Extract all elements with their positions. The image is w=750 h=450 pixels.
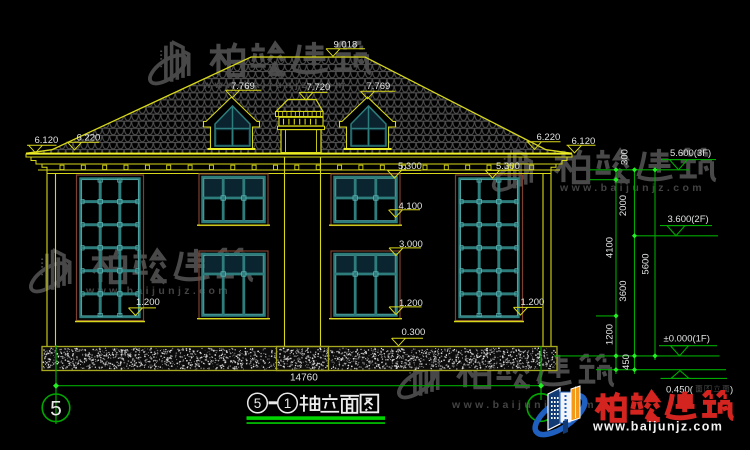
svg-text:6.120: 6.120 [572,136,596,147]
svg-text:7.769: 7.769 [231,81,255,92]
svg-text:14760: 14760 [290,373,318,384]
svg-text:4100: 4100 [605,237,616,258]
svg-text:4.100: 4.100 [399,201,423,212]
svg-text:): ) [730,385,733,396]
svg-text:1.200: 1.200 [399,298,423,309]
svg-text:±0.000(1F): ±0.000(1F) [664,333,710,344]
svg-text:6.220: 6.220 [77,133,101,144]
svg-text:1.200: 1.200 [136,297,160,308]
svg-text:300: 300 [620,149,631,165]
svg-text:5: 5 [254,396,262,411]
svg-text:1.200: 1.200 [521,297,545,308]
svg-text:1200: 1200 [605,324,616,345]
svg-text:5: 5 [50,398,62,421]
svg-text:www.baijunjz.com: www.baijunjz.com [592,420,723,434]
svg-text:5.300: 5.300 [398,161,422,172]
svg-text:6.220: 6.220 [537,132,561,143]
svg-text:1: 1 [284,396,292,411]
svg-text:9.018: 9.018 [334,39,358,50]
svg-text:www.baijunjz.com: www.baijunjz.com [559,182,705,194]
svg-text:0.300: 0.300 [402,327,426,338]
svg-text:3600: 3600 [618,280,629,301]
svg-text:5.300: 5.300 [496,161,520,172]
svg-text:5600: 5600 [641,253,652,274]
svg-text:7.769: 7.769 [367,81,391,92]
svg-text:3.000: 3.000 [399,239,423,250]
svg-text:450: 450 [621,354,632,370]
svg-text:7.720: 7.720 [307,82,331,93]
svg-text:3.600(2F): 3.600(2F) [668,214,709,225]
svg-text:2000: 2000 [618,195,629,216]
svg-text:6.120: 6.120 [35,135,59,146]
svg-text:5.600(3F): 5.600(3F) [670,148,711,159]
